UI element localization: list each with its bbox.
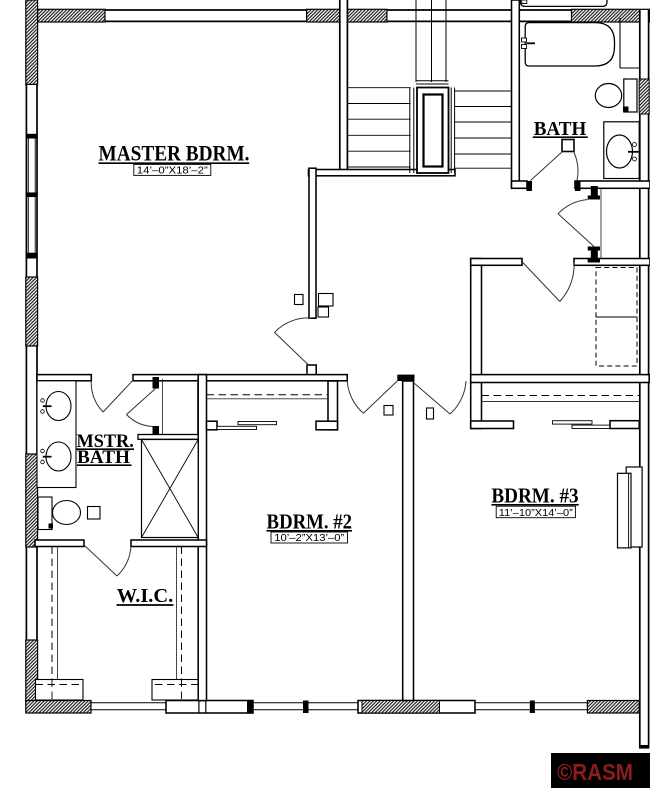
svg-text:BDRM. #3: BDRM. #3 xyxy=(491,483,579,507)
svg-text:10’–2”X13’–0”: 10’–2”X13’–0” xyxy=(274,532,345,544)
svg-text:BDRM. #2: BDRM. #2 xyxy=(267,509,353,533)
svg-text:MASTER BDRM.: MASTER BDRM. xyxy=(99,141,250,166)
svg-text:11’–10”X14’–0”: 11’–10”X14’–0” xyxy=(499,507,574,519)
svg-text:©RASM: ©RASM xyxy=(557,759,633,785)
svg-text:W.I.C.: W.I.C. xyxy=(117,586,174,607)
svg-text:14’–0”X18’–2”: 14’–0”X18’–2” xyxy=(137,165,209,177)
